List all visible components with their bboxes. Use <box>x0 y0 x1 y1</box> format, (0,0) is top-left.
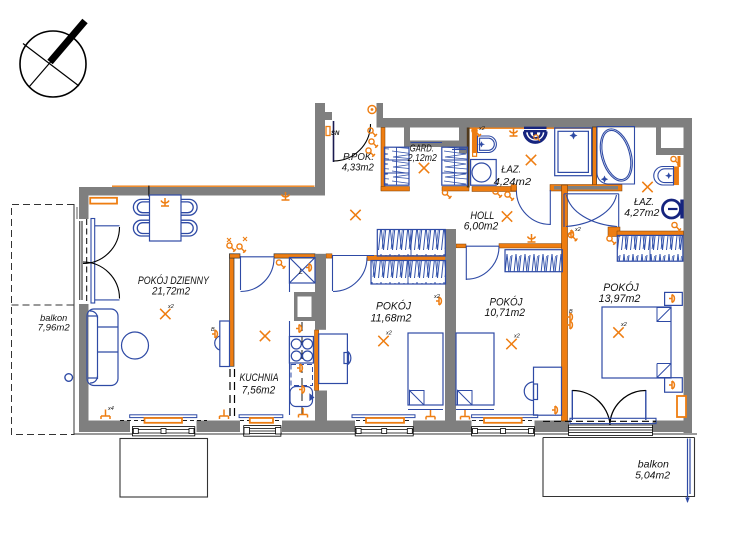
svg-text:x2: x2 <box>574 227 581 233</box>
svg-text:x2: x2 <box>433 294 440 300</box>
svg-text:KUCHNIA: KUCHNIA <box>240 372 279 384</box>
svg-text:10,71m2: 10,71m2 <box>485 307 526 319</box>
svg-text:6,00m2: 6,00m2 <box>464 220 499 232</box>
svg-text:ŁAZ.: ŁAZ. <box>634 197 654 208</box>
svg-text:x2: x2 <box>385 331 392 337</box>
svg-text:21,72m2: 21,72m2 <box>151 286 190 298</box>
svg-text:balkon: balkon <box>638 460 669 471</box>
svg-text:x2: x2 <box>620 322 627 328</box>
svg-text:L: L <box>299 269 303 276</box>
svg-text:7,56m2: 7,56m2 <box>242 385 276 397</box>
svg-text:x2: x2 <box>513 334 520 340</box>
svg-text:11,68m2: 11,68m2 <box>371 313 412 325</box>
svg-text:SN: SN <box>331 131 340 137</box>
svg-text:POKÓJ: POKÓJ <box>376 300 411 313</box>
svg-text:4,27m2: 4,27m2 <box>624 208 659 219</box>
svg-text:B: B <box>569 309 573 315</box>
svg-text:13,97m2: 13,97m2 <box>599 293 641 305</box>
svg-text:ŁAZ.: ŁAZ. <box>501 165 521 176</box>
svg-text:x2: x2 <box>167 304 174 310</box>
svg-text:B: B <box>211 327 215 333</box>
svg-text:x2: x2 <box>478 126 485 132</box>
svg-text:balkon: balkon <box>40 313 67 323</box>
svg-text:2,12m2: 2,12m2 <box>407 153 437 164</box>
svg-text:5,04m2: 5,04m2 <box>635 471 670 482</box>
svg-text:4,33m2: 4,33m2 <box>342 163 374 174</box>
svg-text:4,24m2: 4,24m2 <box>494 177 532 188</box>
svg-text:x4: x4 <box>107 406 114 412</box>
svg-text:7,96m2: 7,96m2 <box>38 323 70 333</box>
